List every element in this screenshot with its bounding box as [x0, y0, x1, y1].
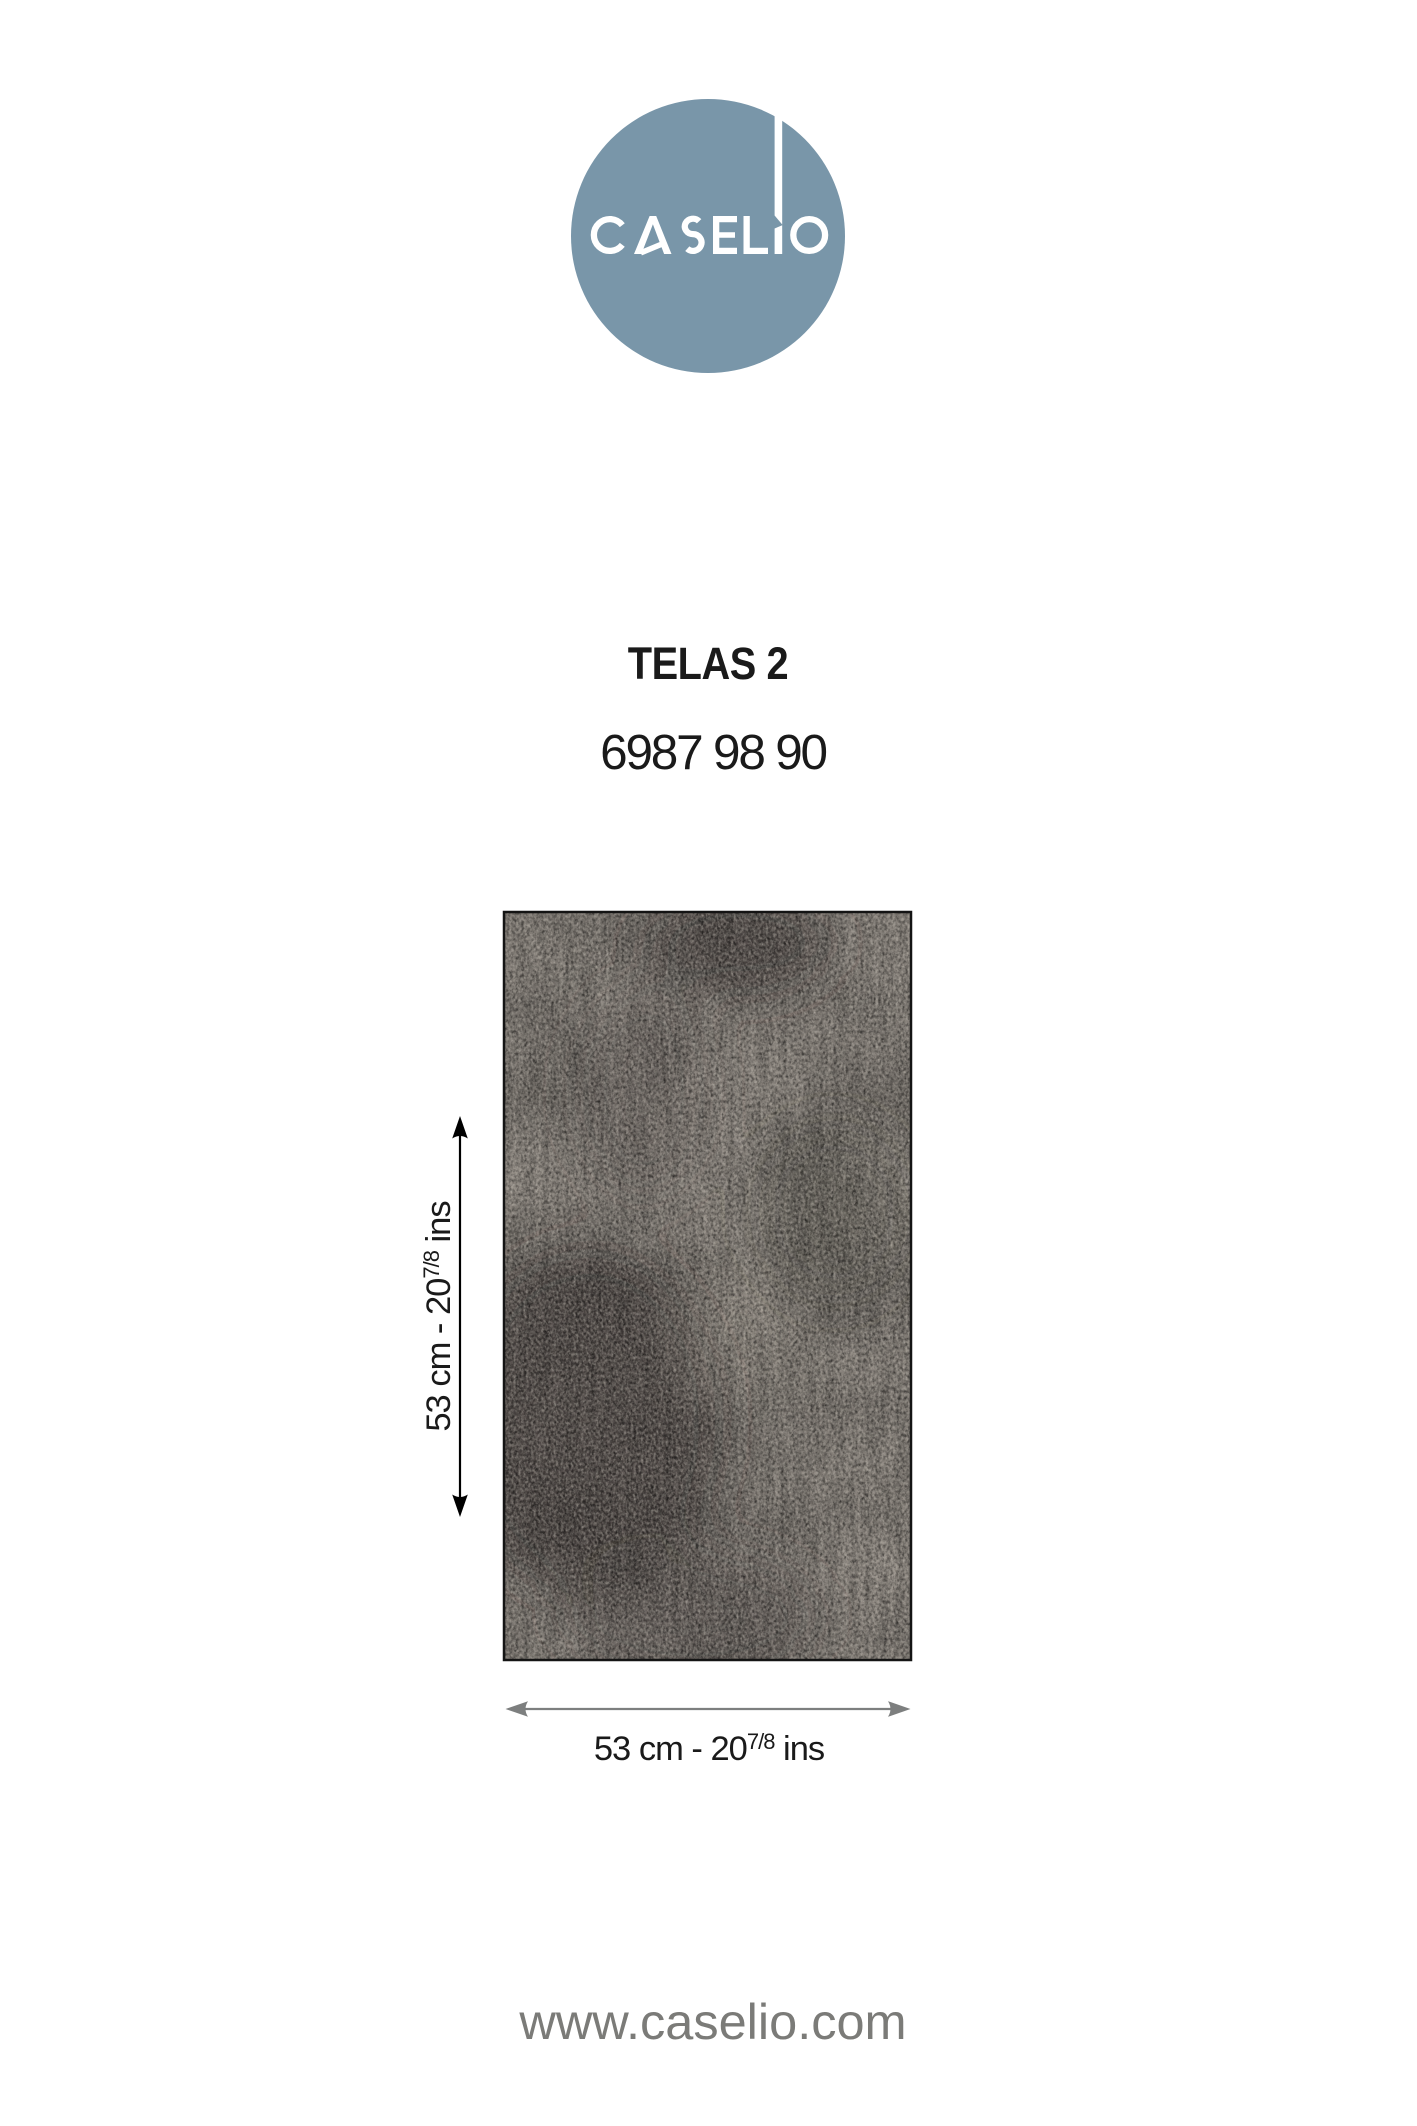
svg-text:6987 98 90: 6987 98 90: [600, 725, 826, 780]
svg-text:53 cm - 207/8 ins: 53 cm - 207/8 ins: [419, 1201, 458, 1431]
svg-text:53 cm - 207/8 ins: 53 cm - 207/8 ins: [594, 1729, 824, 1768]
svg-text:www.caselio.com: www.caselio.com: [518, 1993, 906, 2050]
svg-text:TELAS 2: TELAS 2: [628, 639, 788, 690]
